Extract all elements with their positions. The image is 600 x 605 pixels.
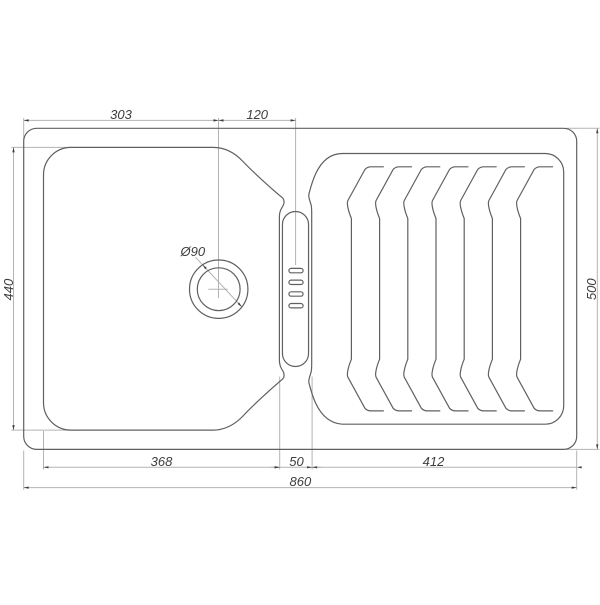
svg-text:412: 412 [423,454,445,469]
svg-text:120: 120 [246,107,268,122]
svg-text:Ø90: Ø90 [180,244,206,259]
svg-text:303: 303 [110,107,132,122]
svg-text:50: 50 [289,454,304,469]
svg-text:368: 368 [151,454,173,469]
svg-text:440: 440 [1,278,16,300]
svg-text:500: 500 [584,278,599,300]
svg-text:860: 860 [290,474,312,489]
